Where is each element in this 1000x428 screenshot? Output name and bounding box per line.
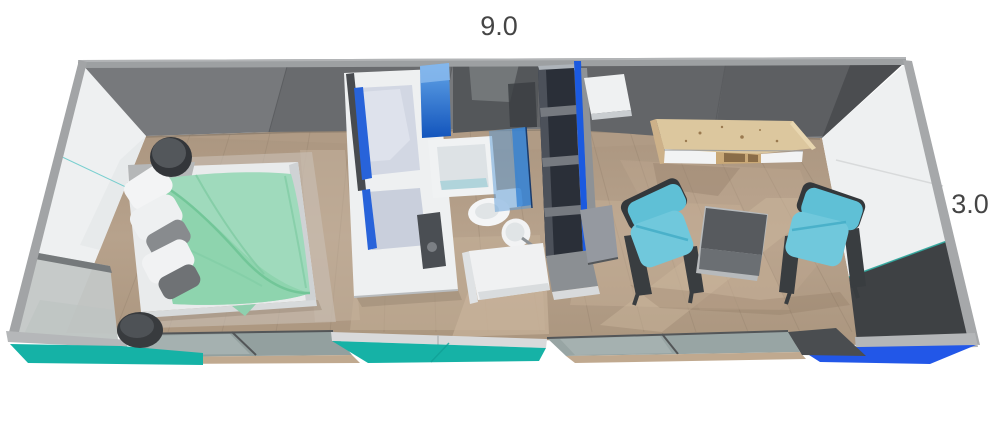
svg-text:9.0: 9.0 [480, 11, 518, 41]
svg-text:3.0: 3.0 [951, 189, 989, 219]
